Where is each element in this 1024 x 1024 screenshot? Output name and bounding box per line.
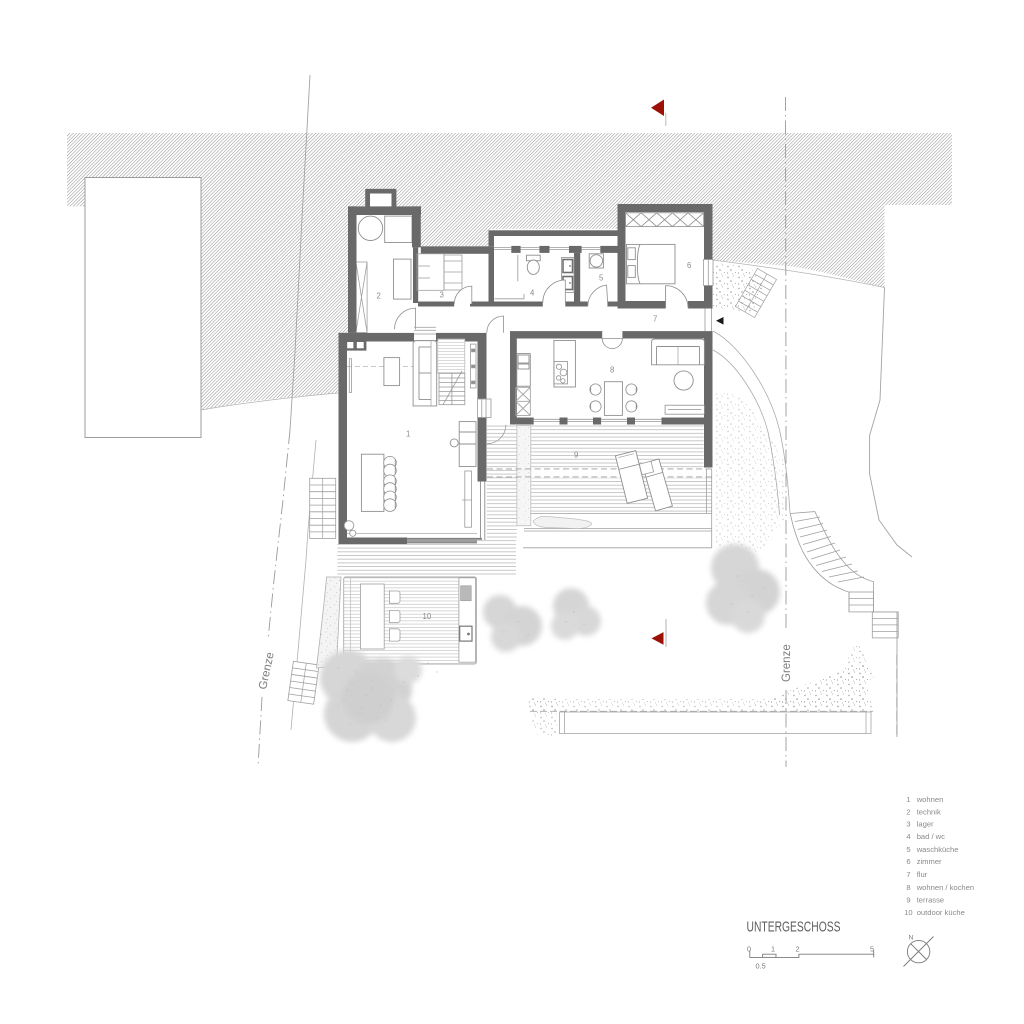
svg-text:4: 4 bbox=[906, 832, 910, 841]
svg-text:0: 0 bbox=[747, 945, 751, 954]
svg-text:5: 5 bbox=[870, 945, 874, 954]
svg-text:technik: technik bbox=[917, 807, 941, 816]
svg-text:N: N bbox=[909, 935, 914, 942]
svg-text:0.5: 0.5 bbox=[756, 962, 766, 971]
svg-text:2: 2 bbox=[906, 807, 910, 816]
svg-text:3: 3 bbox=[440, 291, 444, 300]
svg-text:4: 4 bbox=[530, 289, 535, 298]
svg-text:wohnen / kochen: wohnen / kochen bbox=[916, 883, 974, 892]
svg-text:1: 1 bbox=[771, 945, 775, 954]
svg-text:6: 6 bbox=[906, 857, 910, 866]
svg-text:UNTERGESCHOSS: UNTERGESCHOSS bbox=[747, 920, 841, 936]
svg-text:zimmer: zimmer bbox=[917, 857, 942, 866]
svg-text:bad / wc: bad / wc bbox=[917, 832, 945, 841]
svg-text:outdoor küche: outdoor küche bbox=[917, 908, 965, 917]
svg-text:2: 2 bbox=[377, 292, 381, 301]
svg-text:5: 5 bbox=[906, 845, 910, 854]
svg-text:9: 9 bbox=[906, 896, 910, 905]
svg-text:7: 7 bbox=[653, 315, 657, 324]
svg-text:waschküche: waschküche bbox=[916, 845, 959, 854]
svg-text:1: 1 bbox=[906, 795, 910, 804]
svg-text:1: 1 bbox=[406, 430, 410, 439]
svg-text:10: 10 bbox=[904, 908, 912, 917]
svg-text:10: 10 bbox=[423, 612, 432, 621]
svg-text:7: 7 bbox=[906, 870, 910, 879]
svg-text:lager: lager bbox=[917, 820, 934, 829]
svg-text:terrasse: terrasse bbox=[917, 896, 944, 905]
svg-text:6: 6 bbox=[687, 261, 691, 270]
svg-text:8: 8 bbox=[906, 883, 910, 892]
svg-text:9: 9 bbox=[574, 451, 578, 460]
svg-text:flur: flur bbox=[917, 870, 928, 879]
svg-text:5: 5 bbox=[599, 274, 604, 283]
svg-text:Grenze: Grenze bbox=[781, 644, 793, 682]
svg-text:wohnen: wohnen bbox=[916, 795, 944, 804]
svg-text:8: 8 bbox=[610, 366, 614, 375]
svg-text:3: 3 bbox=[906, 820, 910, 829]
svg-text:2: 2 bbox=[796, 945, 800, 954]
